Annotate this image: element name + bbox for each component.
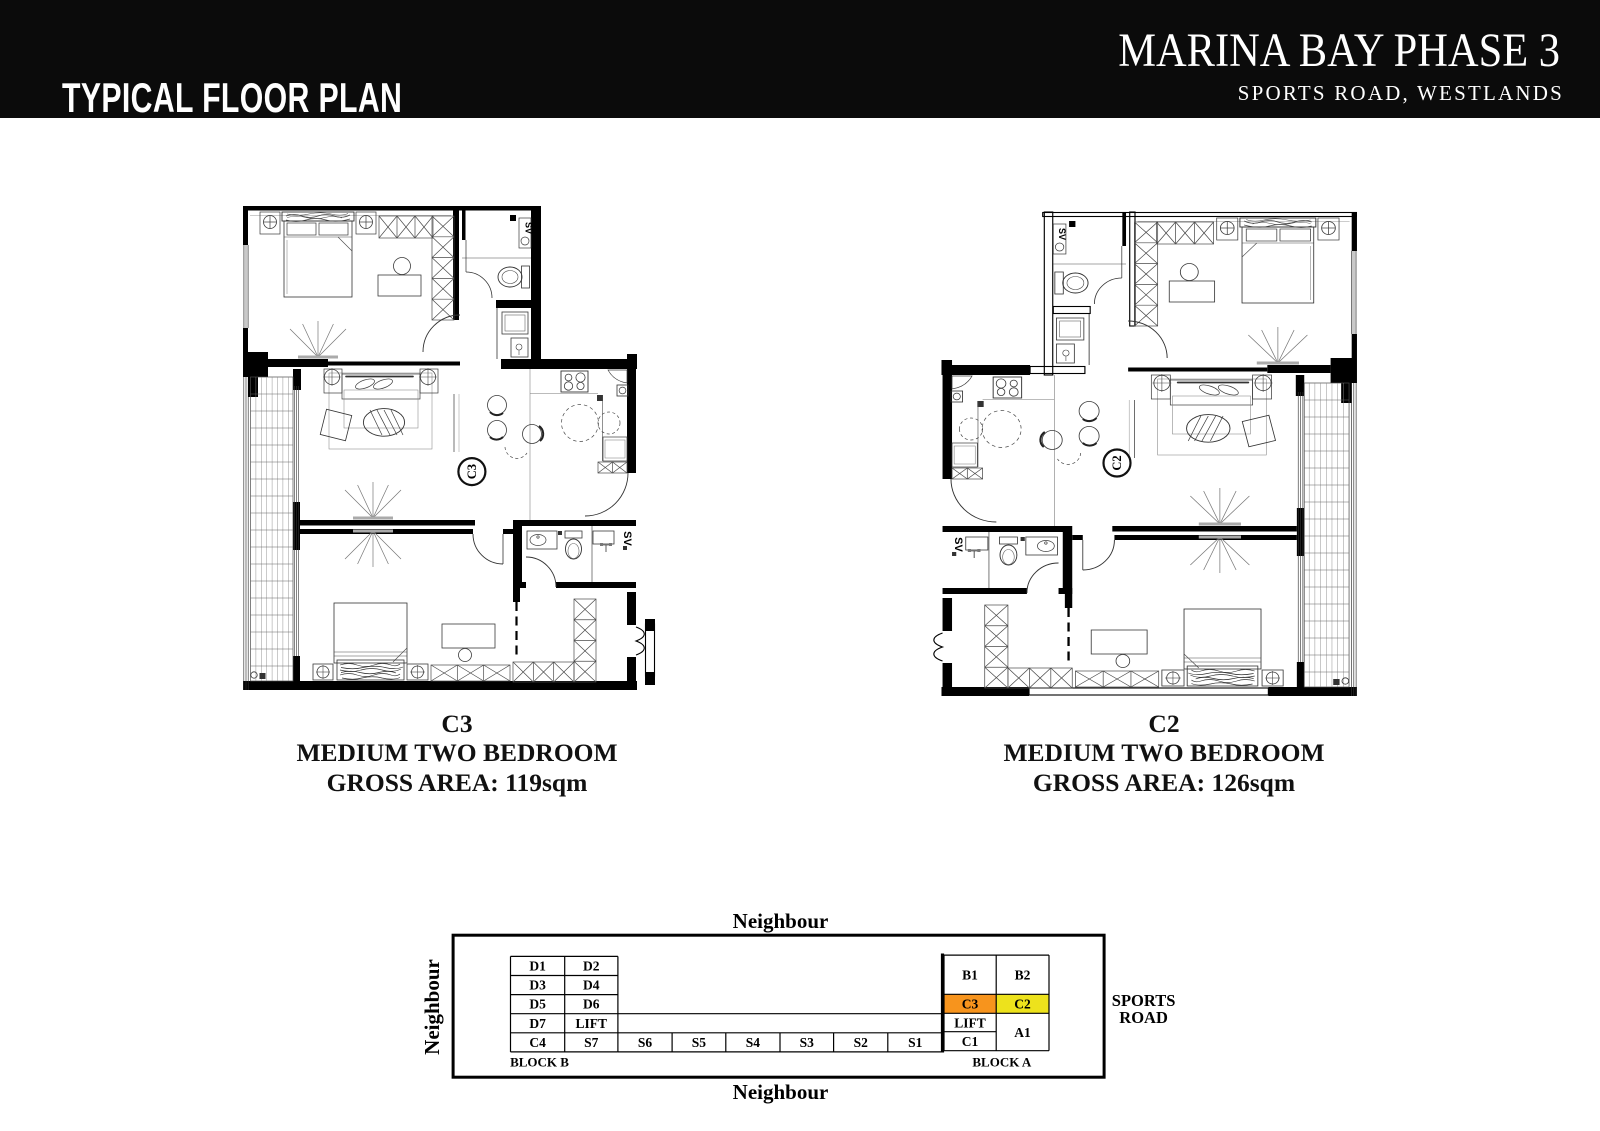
svg-text:B2: B2 [1015, 968, 1031, 983]
svg-text:Neighbour: Neighbour [733, 909, 829, 933]
svg-text:S4: S4 [746, 1035, 761, 1050]
svg-text:ROAD: ROAD [1119, 1008, 1168, 1027]
svg-text:B1: B1 [962, 968, 978, 983]
svg-text:D1: D1 [529, 959, 546, 974]
svg-text:D2: D2 [583, 959, 600, 974]
svg-text:LIFT: LIFT [576, 1016, 608, 1031]
svg-text:D6: D6 [583, 997, 600, 1012]
svg-text:D4: D4 [583, 978, 600, 993]
svg-text:SV: SV [1057, 228, 1067, 240]
svg-text:BLOCK A: BLOCK A [972, 1055, 1031, 1070]
svg-text:C2: C2 [1110, 455, 1124, 470]
svg-text:SV: SV [952, 537, 964, 552]
svg-text:S2: S2 [854, 1035, 869, 1050]
svg-text:LIFT: LIFT [954, 1015, 986, 1030]
svg-text:C4: C4 [529, 1035, 546, 1050]
svg-text:C3: C3 [962, 997, 979, 1012]
svg-text:C1: C1 [962, 1034, 979, 1049]
svg-text:Neighbour: Neighbour [420, 959, 444, 1055]
svg-text:C2: C2 [1014, 997, 1031, 1012]
svg-text:A1: A1 [1014, 1025, 1031, 1040]
svg-text:S5: S5 [692, 1035, 707, 1050]
svg-text:SV: SV [621, 531, 633, 546]
svg-text:S3: S3 [800, 1035, 815, 1050]
svg-text:S6: S6 [638, 1035, 653, 1050]
svg-text:D5: D5 [529, 997, 546, 1012]
svg-text:SV: SV [524, 222, 534, 234]
svg-text:D7: D7 [529, 1016, 546, 1031]
svg-text:D3: D3 [529, 978, 546, 993]
svg-text:S7: S7 [584, 1035, 599, 1050]
svg-text:Neighbour: Neighbour [733, 1080, 829, 1104]
svg-text:S1: S1 [908, 1035, 923, 1050]
svg-text:BLOCK B: BLOCK B [510, 1055, 569, 1070]
svg-text:C3: C3 [465, 464, 479, 479]
